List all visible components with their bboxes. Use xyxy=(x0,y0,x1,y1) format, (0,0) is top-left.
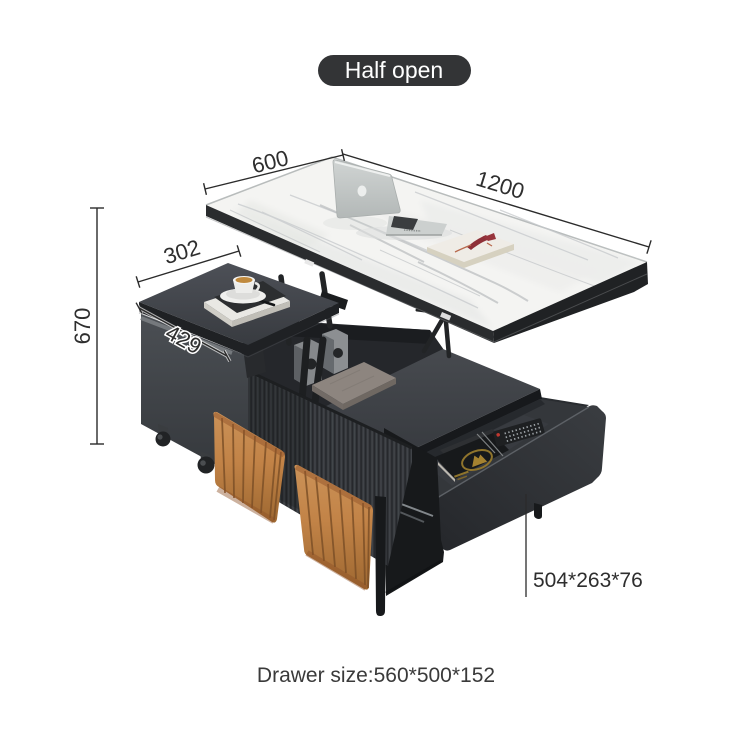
svg-text:670: 670 xyxy=(70,308,95,345)
svg-text:Half open: Half open xyxy=(345,57,443,83)
svg-text:504*263*76: 504*263*76 xyxy=(533,569,643,592)
svg-text:Drawer size:560*500*152: Drawer size:560*500*152 xyxy=(257,664,495,687)
